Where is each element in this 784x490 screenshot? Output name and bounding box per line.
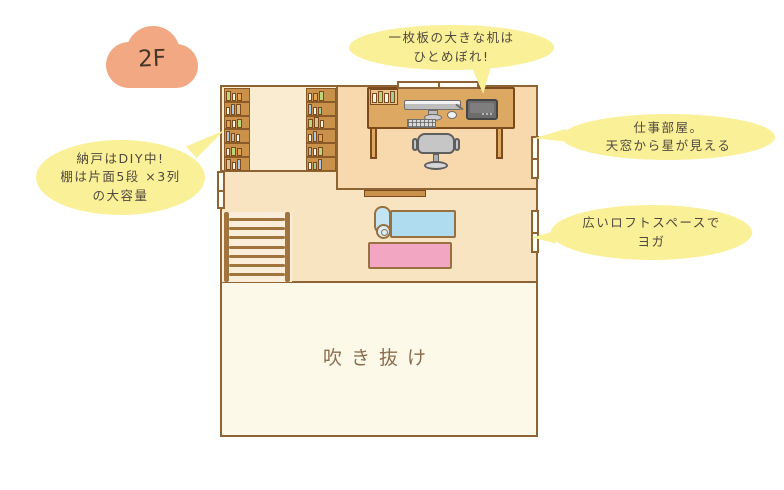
bubble-closet-line3: の大容量 [92, 187, 148, 205]
monitor-icon [404, 100, 461, 110]
stairs-rail-right [285, 212, 290, 282]
yoga-mat-blue [390, 210, 456, 238]
laptop-icon [466, 99, 498, 120]
stairs [222, 212, 292, 282]
bookshelf-right [306, 88, 336, 171]
floorplan-canvas: 吹き抜け 2F 一枚板の大きな机は ひ [0, 0, 784, 490]
floor-label: 2F [105, 24, 199, 93]
bubble-loft-line2: ヨガ [637, 233, 665, 251]
yoga-mat-roll-spiral [376, 224, 391, 239]
window-top [397, 81, 479, 89]
window-right-lower [531, 210, 539, 253]
window-left [217, 171, 225, 209]
bubble-loft: 広いロフトスペースで ヨガ [551, 205, 752, 260]
atrium-label: 吹き抜け [323, 343, 435, 435]
window-right-upper [531, 136, 539, 179]
bubble-desk: 一枚板の大きな机は ひとめぼれ! [349, 25, 554, 70]
stairs-rungs [229, 212, 285, 282]
floor-label-cloud: 2F [106, 26, 198, 92]
desk-leg-left [370, 128, 377, 159]
rug-pink [368, 242, 452, 269]
desk-leg-right [496, 128, 503, 159]
bubble-workroom: 仕事部屋。 天窓から星が見える [562, 114, 775, 160]
keyboard-icon [407, 119, 436, 128]
bubble-closet-line1: 納戸はDIY中! [77, 150, 165, 168]
bubble-closet: 納戸はDIY中! 棚は片面5段 ×3列 の大容量 [36, 140, 205, 215]
bubble-desk-line2: ひとめぼれ! [413, 48, 489, 66]
bubble-loft-line1: 広いロフトスペースで [582, 214, 721, 232]
room-atrium: 吹き抜け [220, 281, 538, 437]
bubble-workroom-line1: 仕事部屋。 [633, 119, 703, 137]
bubble-closet-tail [186, 128, 224, 158]
chair-base [424, 161, 448, 170]
bubble-workroom-line2: 天窓から星が見える [606, 137, 732, 155]
bubble-desk-line1: 一枚板の大きな机は [388, 29, 514, 47]
desk-books-icon [370, 89, 398, 105]
laptop-buttons [490, 113, 492, 115]
bookshelf-left [224, 88, 250, 171]
doorway-step [364, 190, 426, 197]
laptop-screen [470, 103, 494, 113]
mouse-icon [447, 111, 457, 119]
office-chair-icon [417, 133, 455, 154]
bubble-closet-line2: 棚は片面5段 ×3列 [60, 168, 180, 186]
